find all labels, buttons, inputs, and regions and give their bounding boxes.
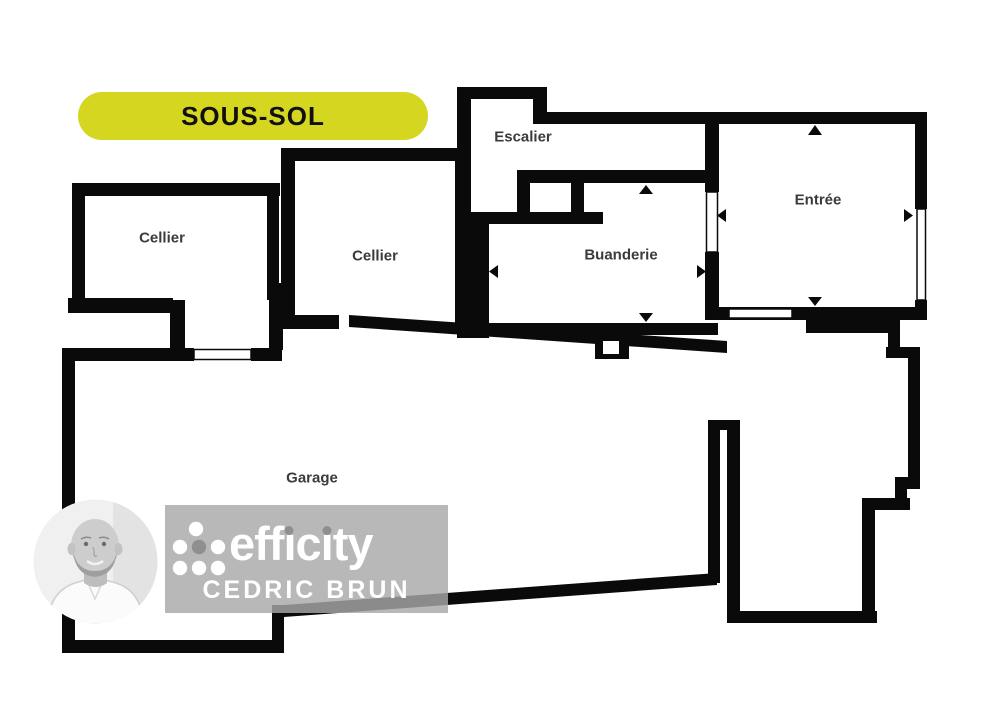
logo-text-part: ty <box>333 517 373 570</box>
room-label-buanderie: Buanderie <box>584 247 657 264</box>
efficity-dots-logo <box>169 513 229 579</box>
level-badge: SOUS-SOL <box>78 92 428 140</box>
agent-name: CEDRIC BRUN <box>165 576 448 605</box>
agency-branding-panel: effıcıty CEDRIC BRUN <box>165 505 448 613</box>
wall-notch <box>603 341 619 354</box>
logo-i-gray-dot: ı <box>321 517 333 570</box>
room-label-escalier: Escalier <box>494 129 552 146</box>
arrow-left-icon <box>717 209 726 222</box>
arrow-left-icon <box>489 265 498 278</box>
logo-text-part: eff <box>229 517 283 570</box>
logo-i-gray-dot: ı <box>283 517 295 570</box>
room-label-cellier-middle: Cellier <box>352 248 398 265</box>
door-opening-garage-top <box>194 350 251 360</box>
arrow-down-icon <box>808 297 822 306</box>
arrow-up-icon <box>808 125 822 135</box>
logo-text-part: c <box>296 517 321 570</box>
arrow-right-icon <box>697 265 706 278</box>
room-label-garage: Garage <box>286 470 338 487</box>
door-opening-entree-bottom <box>729 309 792 318</box>
window-opening-entree-right <box>917 209 926 300</box>
room-label-entree: Entrée <box>795 192 842 209</box>
arrow-up-icon <box>639 185 653 194</box>
door-opening-entree-left <box>707 192 718 252</box>
room-label-cellier-left: Cellier <box>139 230 185 247</box>
arrow-right-icon <box>904 209 913 222</box>
arrow-down-icon <box>639 313 653 322</box>
floorplan-page: SOUS-SOL Cellier Cellier Escalier Buande… <box>0 0 1000 715</box>
agency-logo-text: effıcıty <box>229 513 373 575</box>
agent-photo <box>33 499 158 624</box>
